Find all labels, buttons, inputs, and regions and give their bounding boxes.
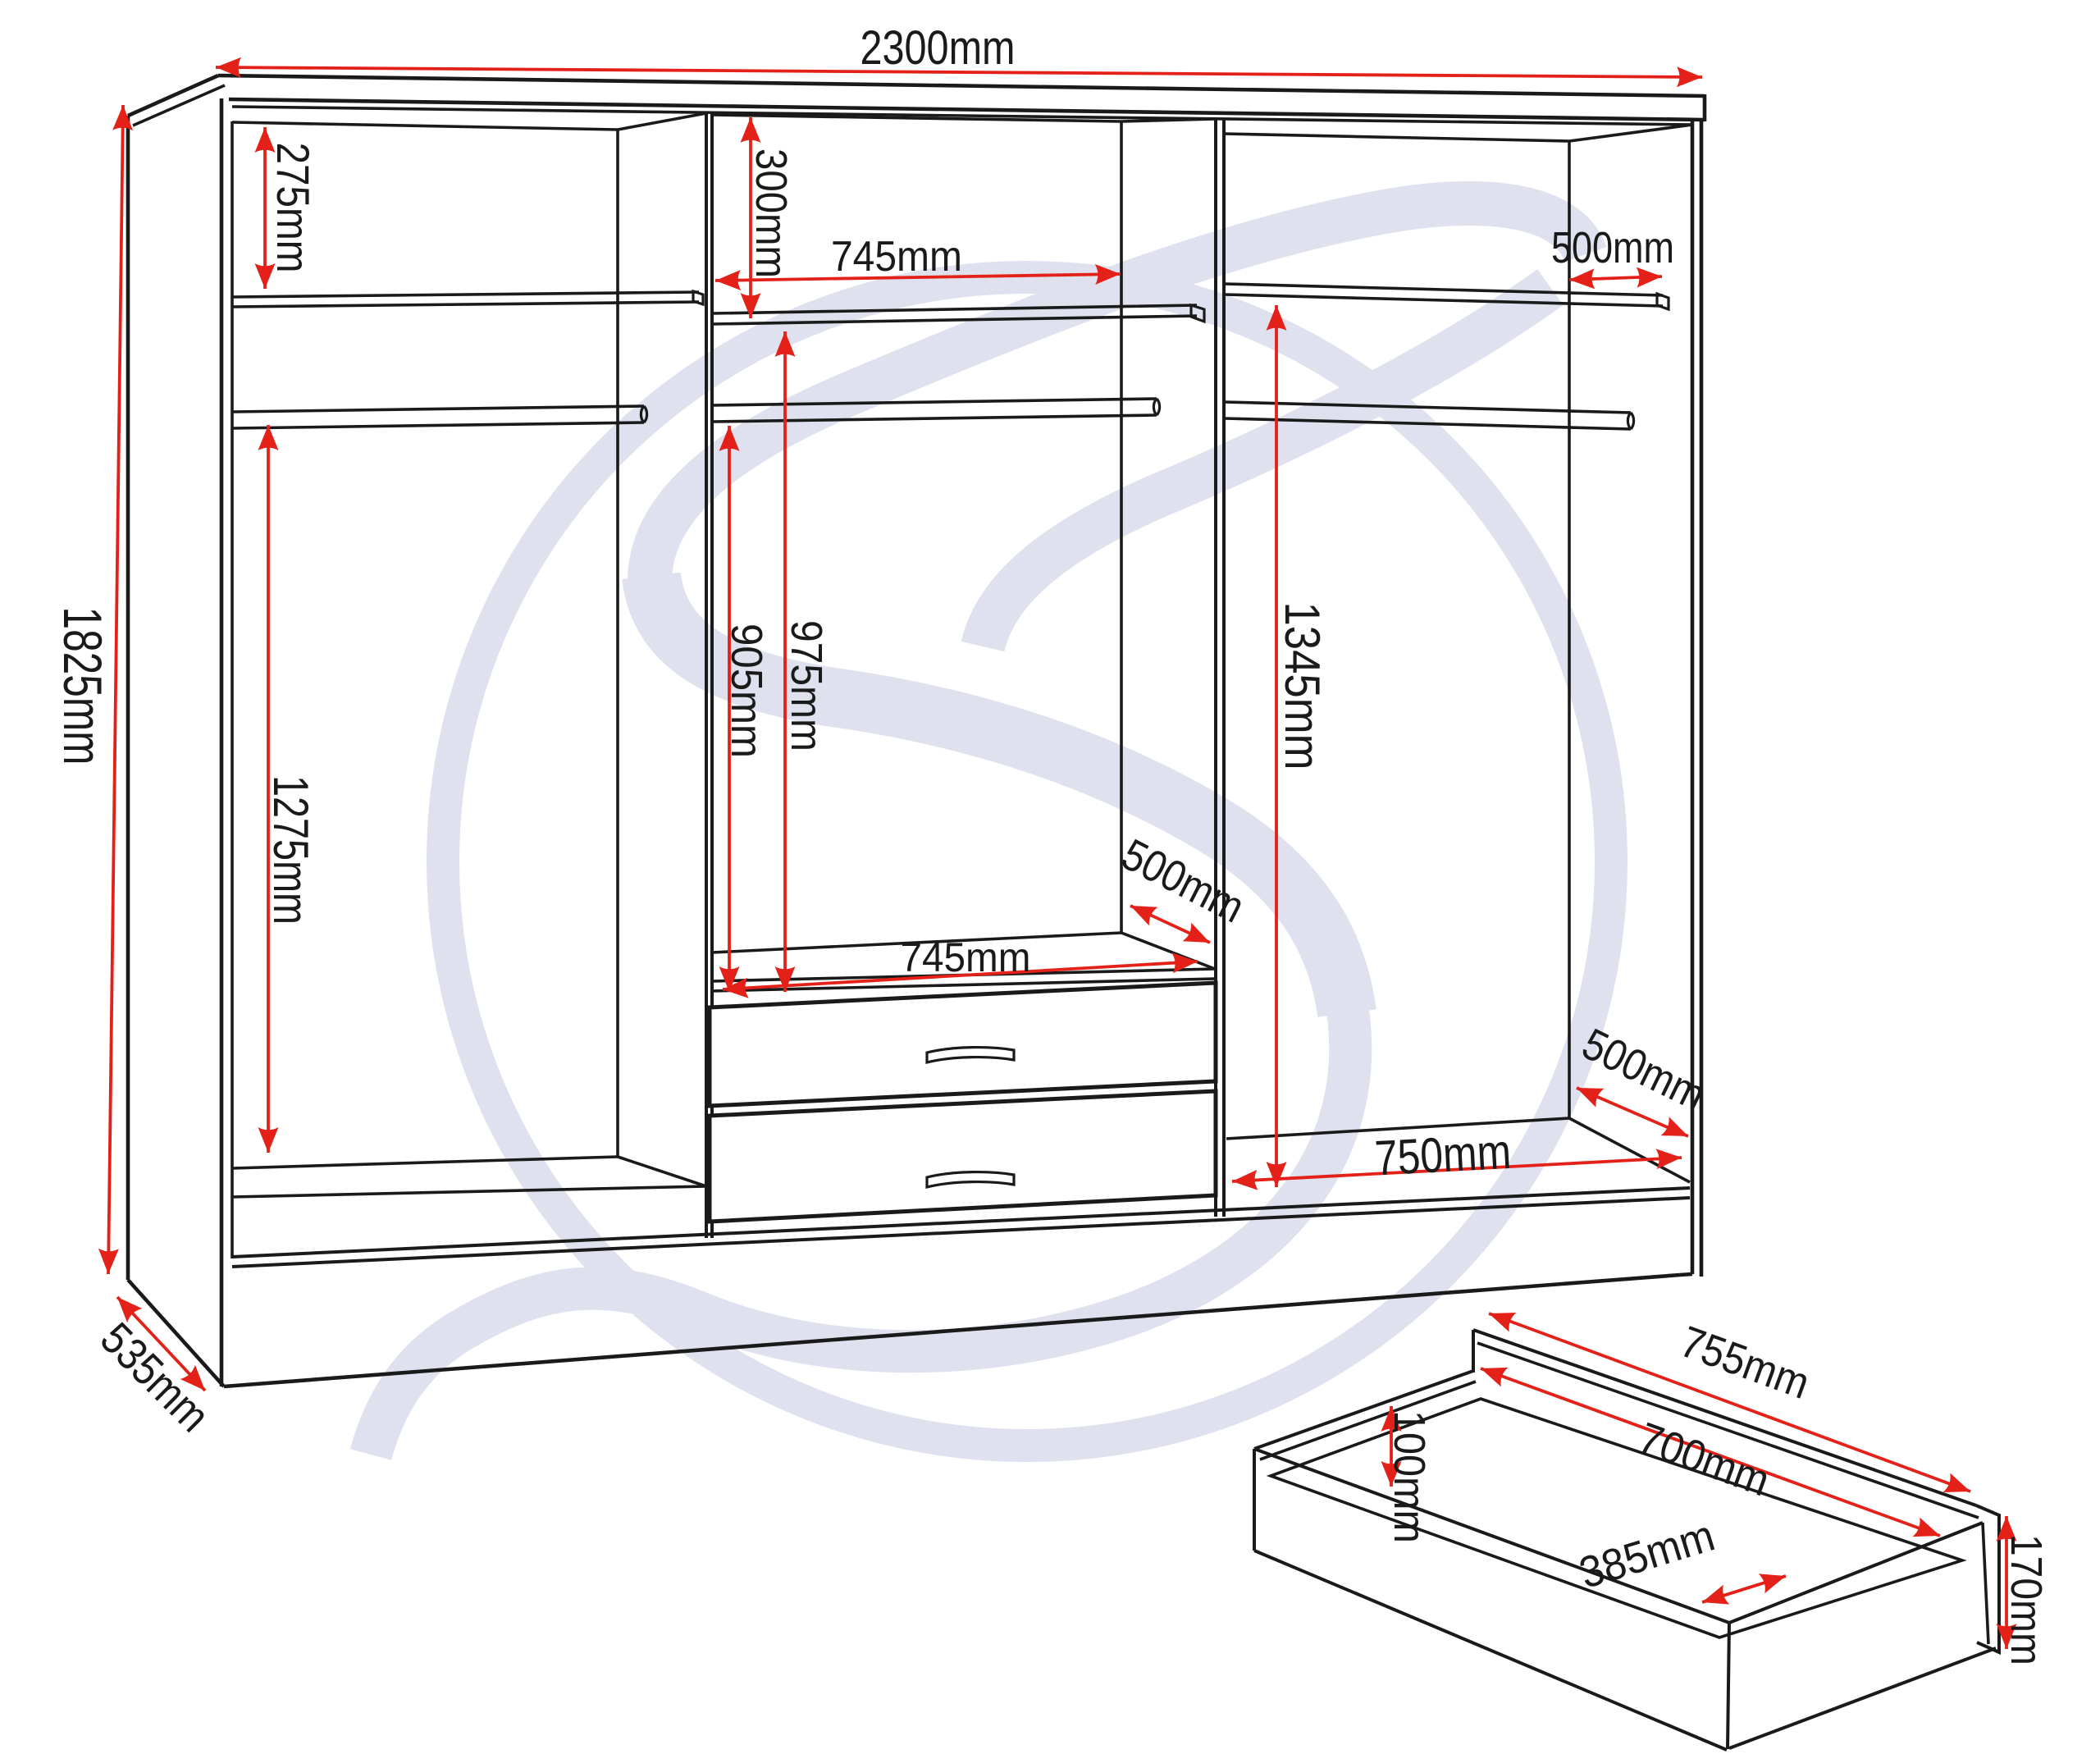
svg-text:100mm: 100mm [1385,1410,1434,1543]
svg-text:170mm: 170mm [2002,1534,2051,1665]
svg-text:745mm: 745mm [831,233,962,281]
svg-text:750mm: 750mm [1373,1124,1512,1186]
svg-text:275mm: 275mm [267,143,319,273]
svg-text:975mm: 975mm [782,620,831,751]
svg-text:745mm: 745mm [901,934,1031,980]
svg-text:300mm: 300mm [746,148,796,278]
svg-text:500mm: 500mm [1551,223,1674,272]
svg-text:1275mm: 1275mm [263,775,318,925]
svg-text:905mm: 905mm [722,623,771,758]
svg-text:1825mm: 1825mm [52,607,113,765]
svg-text:1345mm: 1345mm [1275,602,1330,770]
svg-text:2300mm: 2300mm [861,21,1016,75]
